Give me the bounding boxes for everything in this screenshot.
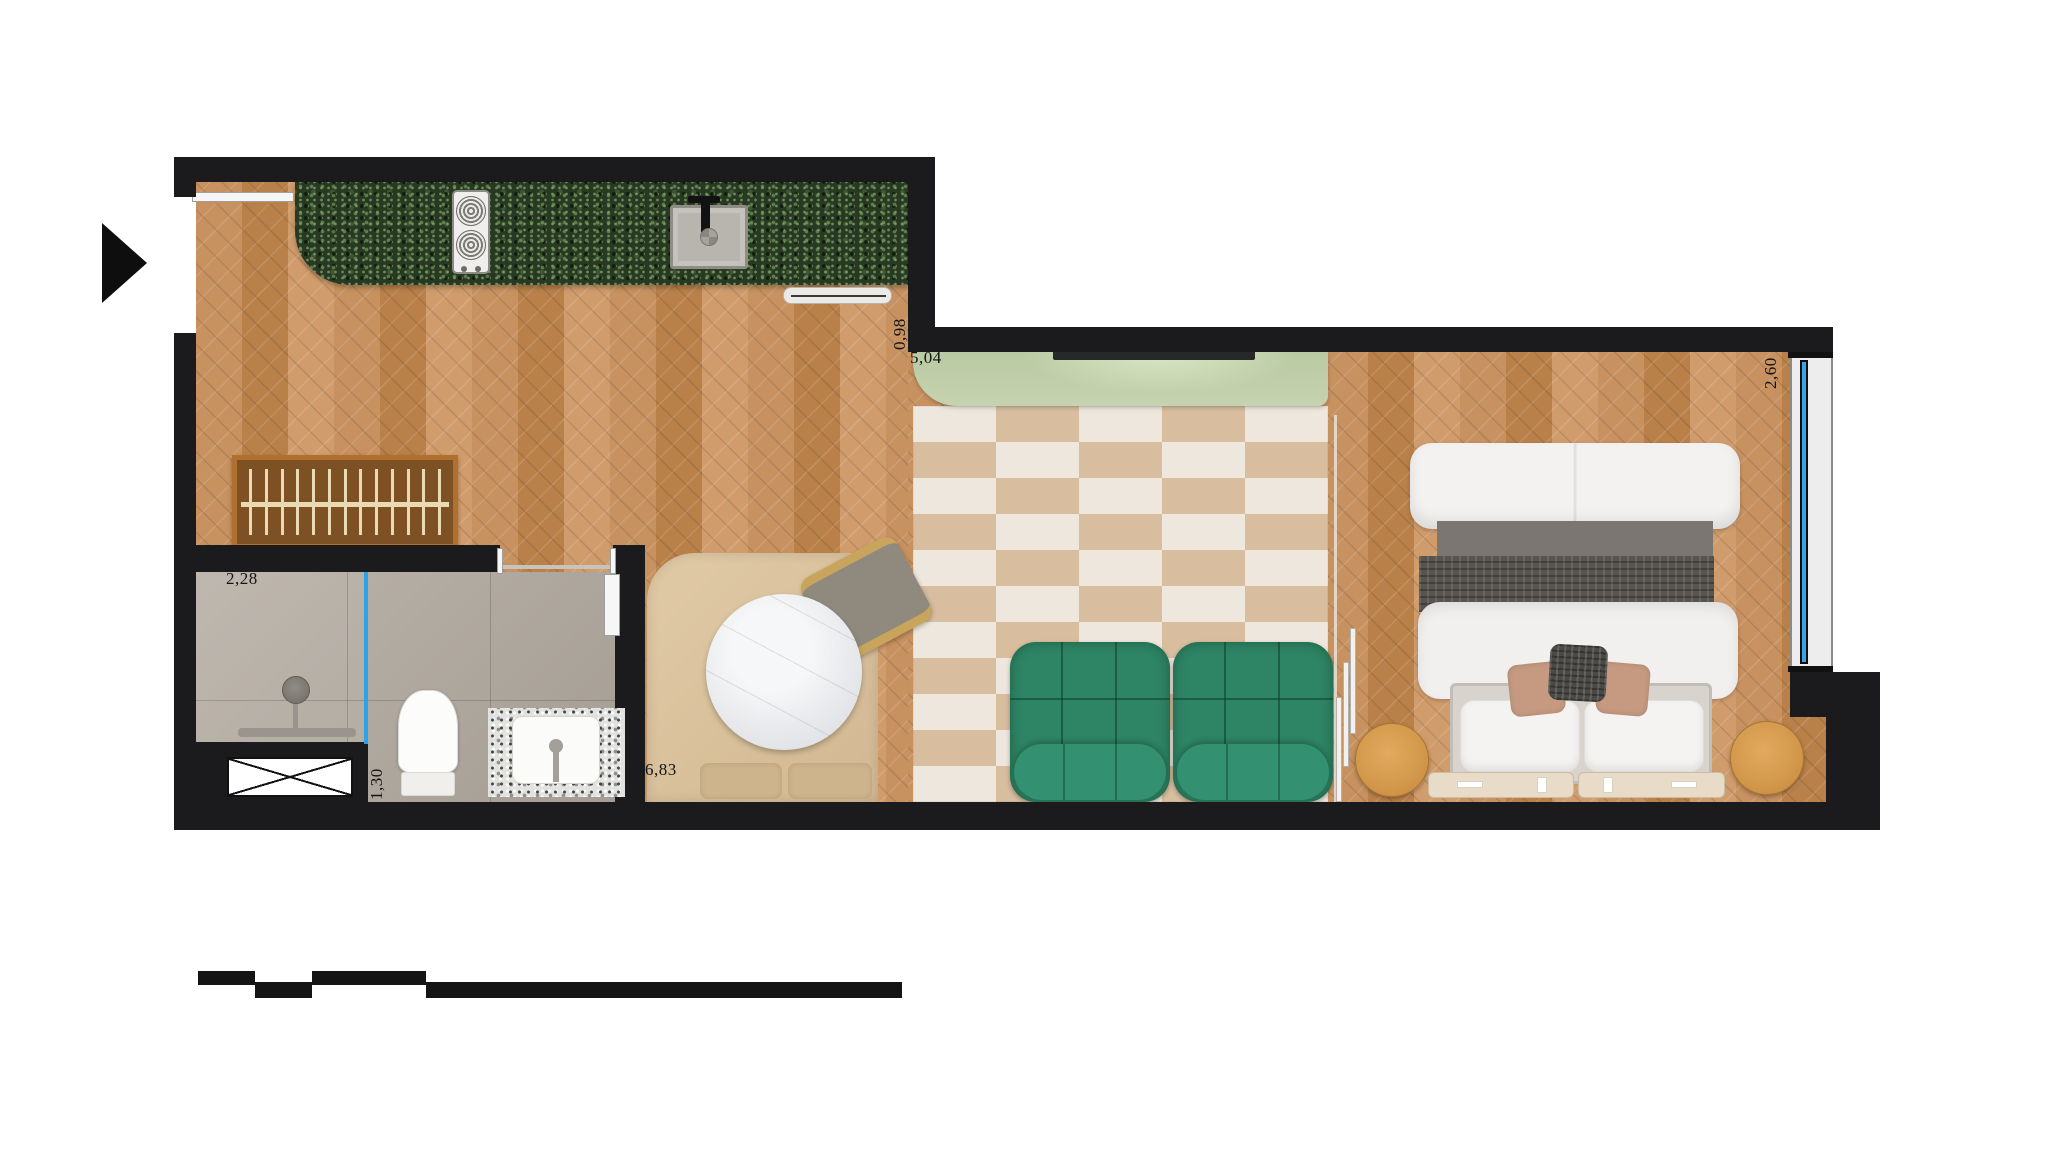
dim-label-living-length: 5,04 xyxy=(910,349,942,366)
shower-pipe xyxy=(293,702,298,730)
cooktop-knob xyxy=(461,266,467,272)
scale-bar-segment-1 xyxy=(198,971,255,985)
window xyxy=(1790,352,1833,672)
wall-right-step xyxy=(1790,672,1880,717)
scale-bar-segment-4 xyxy=(426,982,902,998)
bath-door-jamb xyxy=(497,548,503,574)
bath-door-jamb xyxy=(610,548,616,574)
kitchen-counter xyxy=(295,182,908,285)
wall-top-right xyxy=(908,327,1833,352)
window-glass xyxy=(1800,360,1808,664)
dim-label-window-width: 2,60 xyxy=(1762,357,1779,389)
dim-label-bath-width: 2,28 xyxy=(226,570,258,587)
burner-icon xyxy=(456,196,486,226)
wall-left-lower xyxy=(174,333,196,830)
dim-label-hall-length: 6,83 xyxy=(645,761,677,778)
scale-bar-segment-2 xyxy=(255,982,312,998)
scale-bar-segment-3 xyxy=(312,971,426,985)
wall-bottom xyxy=(174,802,1880,830)
sliding-door-panel xyxy=(1343,662,1349,767)
wall-bath-top-b xyxy=(613,545,645,572)
sofa-seat xyxy=(1177,744,1329,800)
wall-bath-top-a xyxy=(196,545,500,572)
bath-door-track xyxy=(503,565,610,569)
accent-pillow-knit xyxy=(1548,644,1609,703)
head-pillow xyxy=(1410,443,1740,529)
bench-tab xyxy=(1537,777,1547,793)
seat-cushion xyxy=(788,763,872,799)
shaft-box-icon xyxy=(227,757,353,797)
wall-shelf xyxy=(783,287,892,304)
bench-tab xyxy=(1603,777,1613,793)
wall-left-upper xyxy=(174,157,196,197)
vanity-faucet-icon xyxy=(549,739,563,753)
dining-table xyxy=(706,594,862,750)
sink-drain-icon xyxy=(700,228,718,246)
wall-top-left xyxy=(174,157,935,182)
wall-kitchen-right xyxy=(908,157,935,352)
bed xyxy=(1407,443,1743,800)
cooktop-knob xyxy=(475,266,481,272)
entry-arrow-icon xyxy=(102,223,147,303)
floor-plan-canvas: 2,28 1,30 6,83 5,04 0,98 2,60 xyxy=(0,0,2048,1152)
rack-rail xyxy=(241,502,449,507)
shower-glass xyxy=(364,572,368,744)
burner-icon xyxy=(456,230,486,260)
bath-door-leaf xyxy=(604,574,620,636)
seat-cushion xyxy=(700,763,782,799)
sliding-door-panel xyxy=(1336,697,1342,802)
vanity-faucet xyxy=(553,752,559,782)
window-jamb xyxy=(1788,352,1833,358)
sofa-seat xyxy=(1014,744,1166,800)
armchair-left xyxy=(1010,642,1170,802)
sliding-door-panel xyxy=(1350,628,1356,734)
foot-bench-right xyxy=(1578,772,1725,798)
entry-door-leaf xyxy=(192,192,294,202)
slatted-rack xyxy=(232,455,458,549)
toilet-tank xyxy=(401,772,455,796)
foot-bench-left xyxy=(1428,772,1574,798)
shelf-line xyxy=(791,295,886,297)
shower-head-icon xyxy=(282,676,310,704)
sofa-back xyxy=(1010,642,1170,756)
dim-label-bath-niche: 1,30 xyxy=(368,768,385,800)
dim-label-living-offset: 0,98 xyxy=(891,318,908,350)
bench-tab xyxy=(1457,781,1483,788)
armchair-right xyxy=(1173,642,1333,802)
bench-tab xyxy=(1671,781,1697,788)
toilet xyxy=(398,690,458,774)
sofa-back xyxy=(1173,642,1333,756)
